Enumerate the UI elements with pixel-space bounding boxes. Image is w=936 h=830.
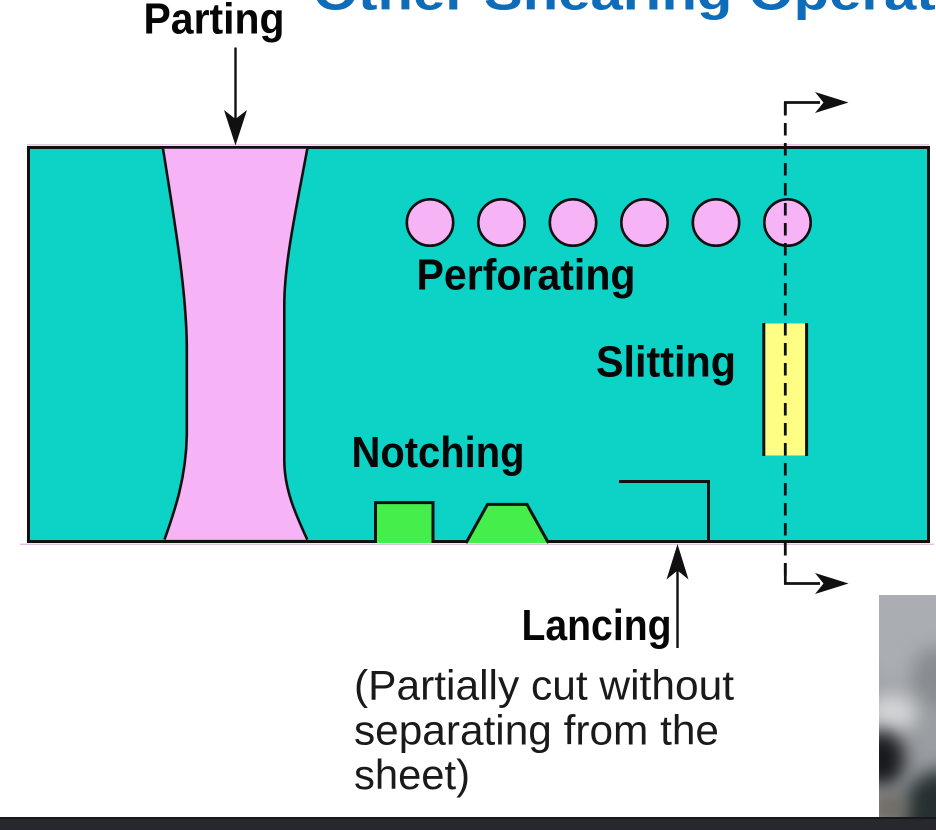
svg-text:sheet): sheet) <box>354 751 470 798</box>
svg-text:Slitting: Slitting <box>596 338 736 387</box>
svg-text:Lancing: Lancing <box>522 601 672 650</box>
svg-text:Notching: Notching <box>352 428 525 477</box>
svg-text:Perforating: Perforating <box>417 251 636 300</box>
svg-text:separating from the: separating from the <box>354 706 719 753</box>
svg-text:(Partially cut without: (Partially cut without <box>354 662 734 709</box>
svg-text:Other Shearing Operations: Other Shearing Operations <box>313 0 936 21</box>
svg-text:Parting: Parting <box>144 0 285 44</box>
